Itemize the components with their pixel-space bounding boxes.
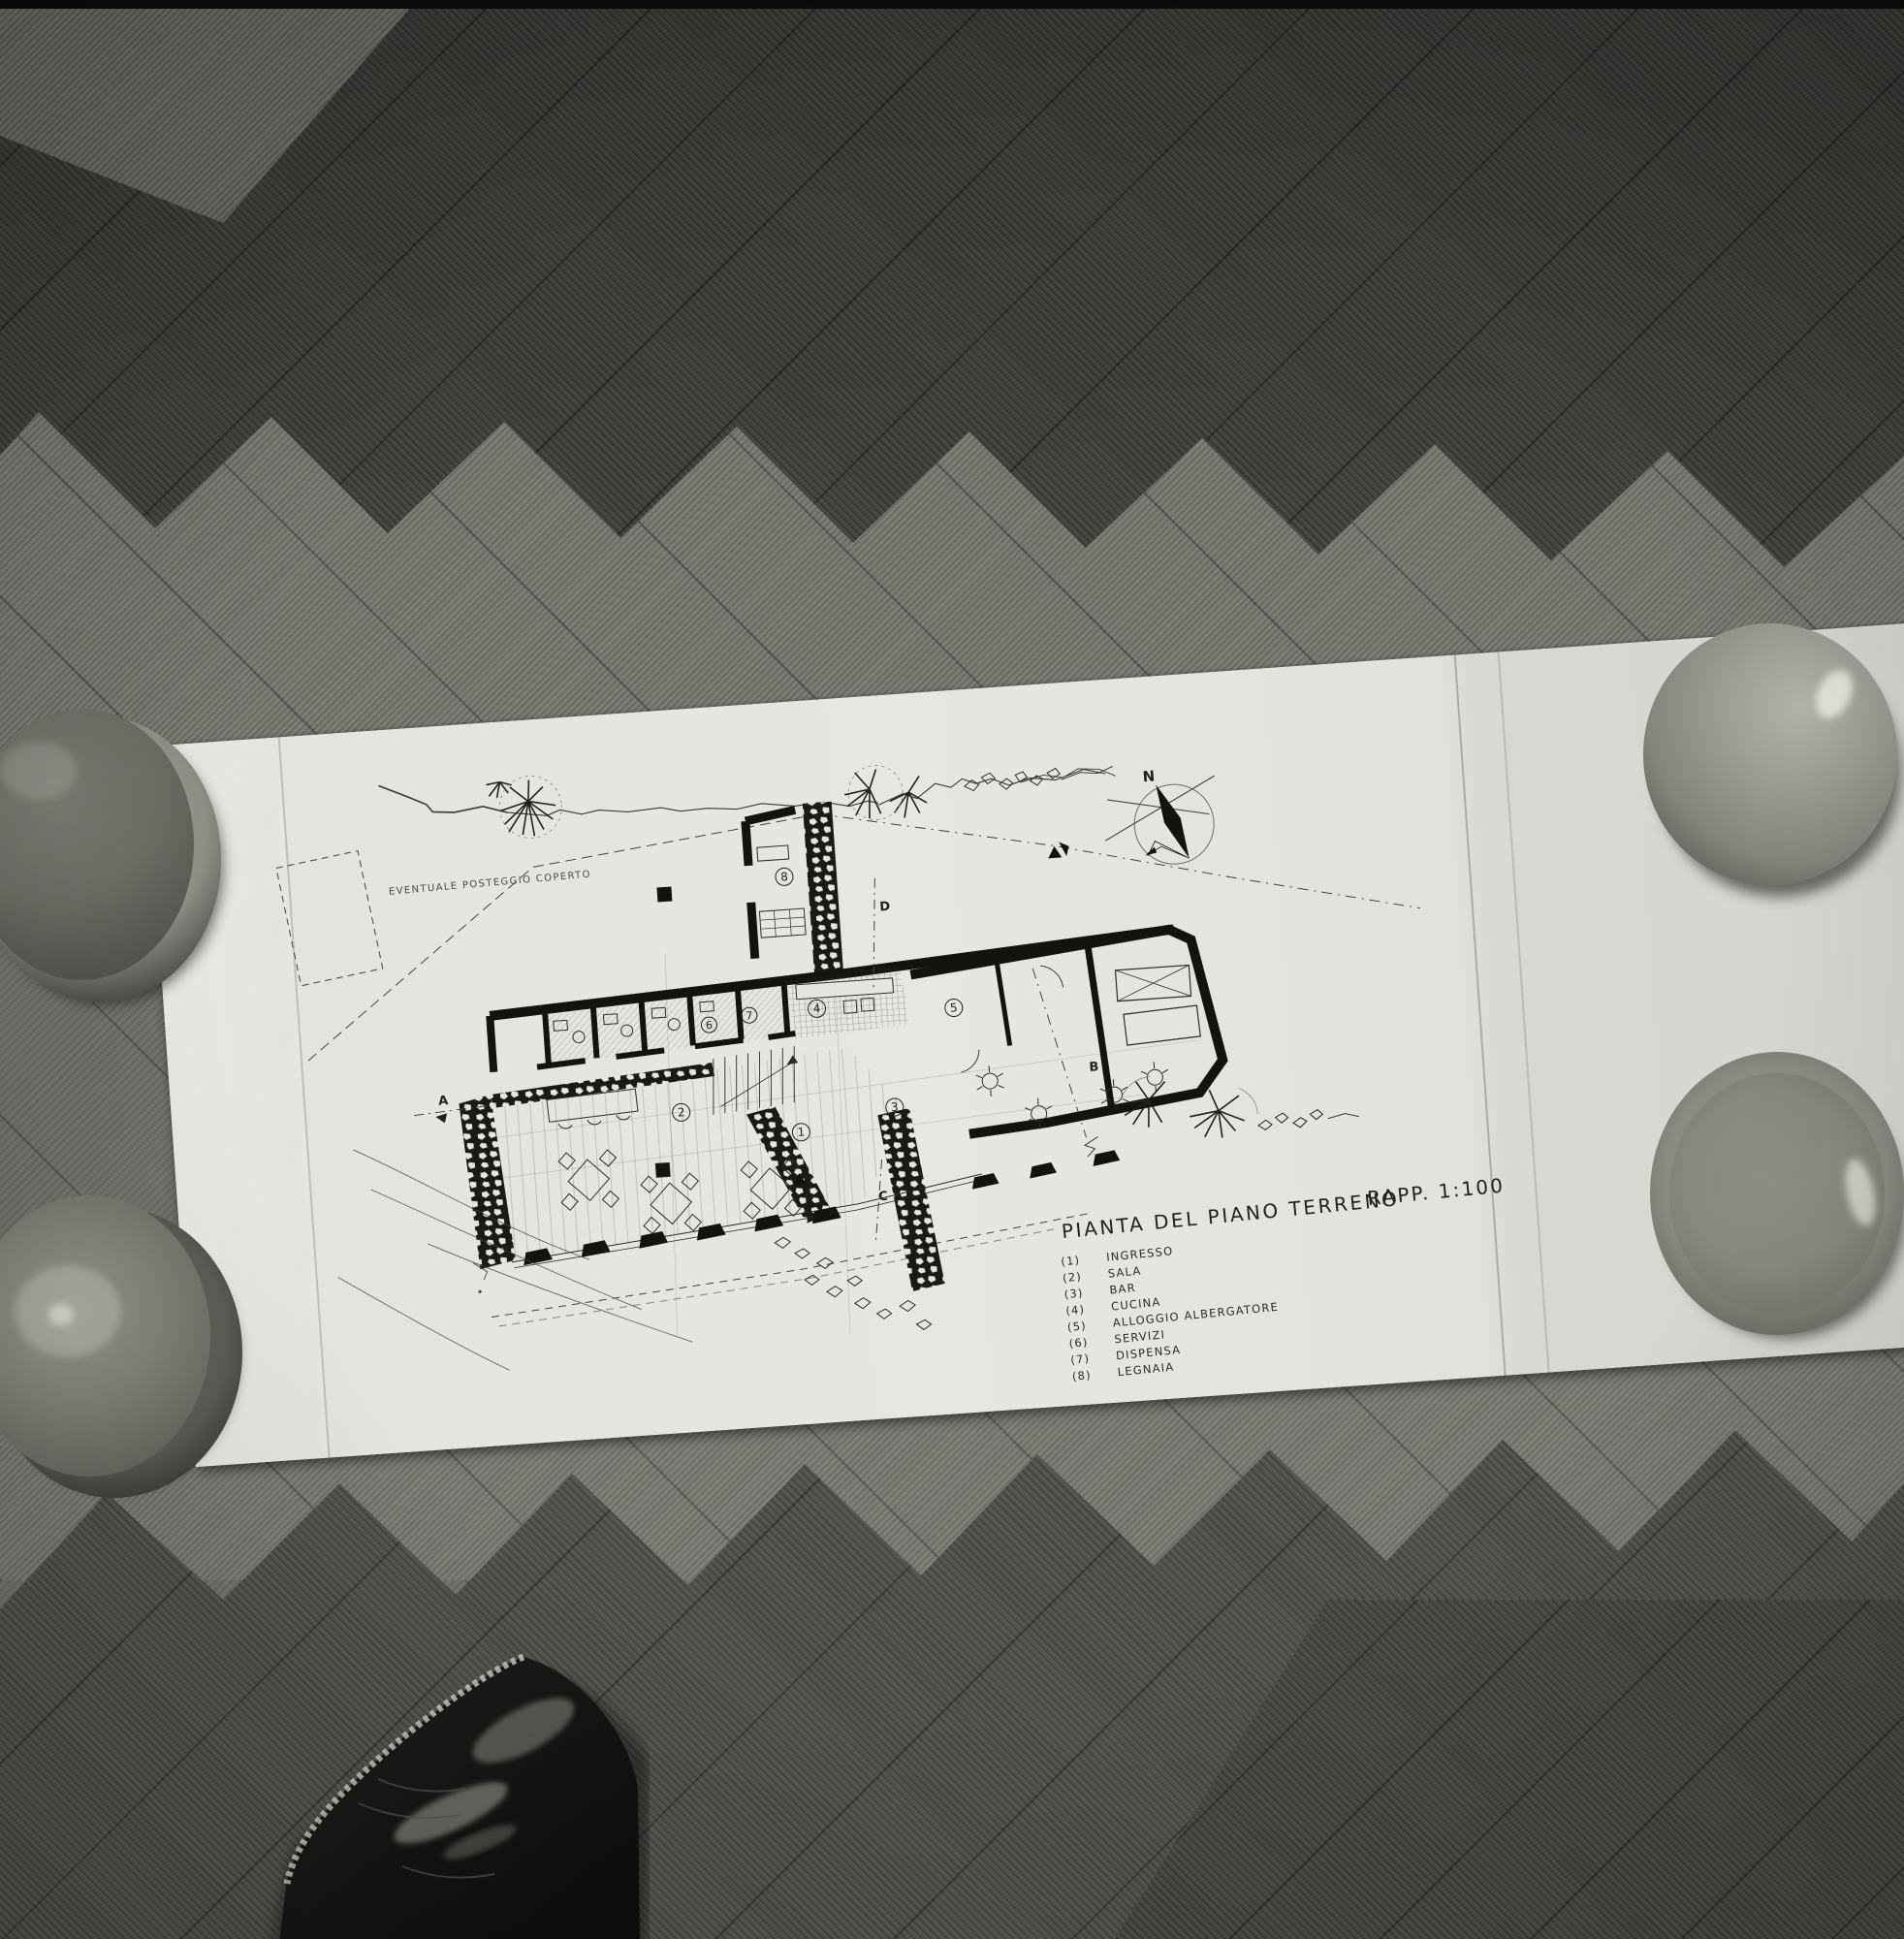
legend-num-5: (5) <box>1066 1319 1087 1334</box>
section-marker-b: B <box>1089 1060 1099 1075</box>
room-number-5: 5 <box>950 1001 959 1014</box>
bowl-bottom-right <box>1638 1042 1904 1352</box>
shoe-graphic <box>233 1643 650 1939</box>
compass-north-label: N <box>1142 767 1156 785</box>
parking-area-outline <box>276 851 383 986</box>
bowl-bottom-left <box>0 1188 247 1508</box>
legend-num-6: (6) <box>1068 1335 1089 1351</box>
legend-label-3: BAR <box>1109 1281 1137 1297</box>
room-number-4: 4 <box>812 1001 821 1015</box>
legend-num-4: (4) <box>1065 1302 1086 1318</box>
bowl-top-left <box>0 703 233 1013</box>
room-number-7: 7 <box>746 1009 753 1022</box>
room-number-3: 3 <box>891 1100 900 1114</box>
legend-label-1: INGRESSO <box>1105 1244 1173 1264</box>
plan-annex-legnaia <box>651 802 843 985</box>
legend-num-1: (1) <box>1061 1254 1081 1269</box>
drawing-scale: RAPP. 1:100 <box>1366 1173 1506 1210</box>
legend-num-7: (7) <box>1070 1351 1091 1367</box>
section-marker-c: C <box>878 1190 889 1205</box>
leather-shoe <box>233 1643 650 1939</box>
legend: (1) INGRESSO (2) SALA (3) BAR (4) CUCINA… <box>1061 1234 1285 1383</box>
section-marker-a: A <box>438 1094 449 1109</box>
room-number-2: 2 <box>677 1105 685 1119</box>
section-marker-d: D <box>879 900 891 915</box>
legend-num-8: (8) <box>1071 1368 1092 1383</box>
legend-num-3: (3) <box>1063 1286 1084 1301</box>
bowl-top-right <box>1634 616 1904 906</box>
title-block: PIANTA DEL PIANO TERRENO RAPP. 1:100 <box>1060 1173 1507 1243</box>
legend-label-6: SERVIZI <box>1114 1327 1166 1346</box>
room-number-8: 8 <box>780 870 789 883</box>
legend-label-2: SALA <box>1107 1263 1142 1280</box>
legend-label-4: CUCINA <box>1110 1295 1161 1314</box>
room-number-6: 6 <box>706 1019 714 1032</box>
legend-num-2: (2) <box>1062 1269 1082 1285</box>
tree-symbols-top <box>486 748 928 846</box>
property-boundary-lines <box>275 773 1445 1340</box>
drawing-title: PIANTA DEL PIANO TERRENO <box>1061 1187 1401 1243</box>
photograph-scene: N <box>0 0 1904 1939</box>
site-note-text: EVENTUALE POSTEGGIO COPERTO <box>389 870 592 898</box>
legend-label-8: LEGNAIA <box>1117 1360 1175 1380</box>
compass-rose: N <box>1100 763 1221 869</box>
photo-frame-edge <box>0 0 1904 9</box>
room-number-1: 1 <box>797 1126 806 1139</box>
